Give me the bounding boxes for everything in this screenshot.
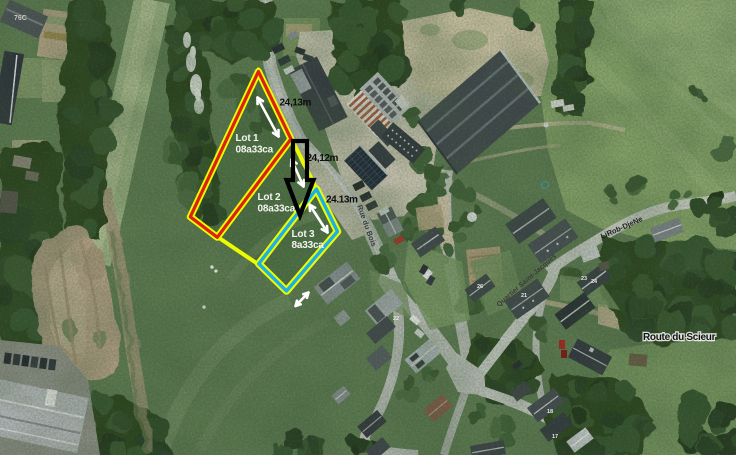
svg-text:26: 26 — [477, 284, 483, 290]
svg-text:23: 23 — [581, 276, 587, 282]
svg-text:24,13m: 24,13m — [280, 98, 312, 109]
svg-text:Lot 1: Lot 1 — [236, 133, 260, 144]
svg-text:8a33ca: 8a33ca — [292, 240, 325, 251]
svg-text:24: 24 — [591, 279, 598, 285]
svg-text:Lot 3: Lot 3 — [292, 229, 316, 240]
svg-text:17: 17 — [552, 434, 558, 440]
svg-text:22: 22 — [393, 316, 399, 322]
svg-text:18: 18 — [547, 409, 553, 415]
svg-text:21: 21 — [521, 293, 527, 299]
svg-text:08a33ca: 08a33ca — [258, 204, 296, 215]
svg-text:24,12m: 24,12m — [307, 153, 339, 164]
svg-text:24.13m: 24.13m — [326, 195, 358, 206]
svg-text:Route du Scieur: Route du Scieur — [643, 332, 716, 343]
svg-text:Lot 2: Lot 2 — [258, 192, 282, 203]
svg-text:08a33ca: 08a33ca — [236, 145, 274, 156]
